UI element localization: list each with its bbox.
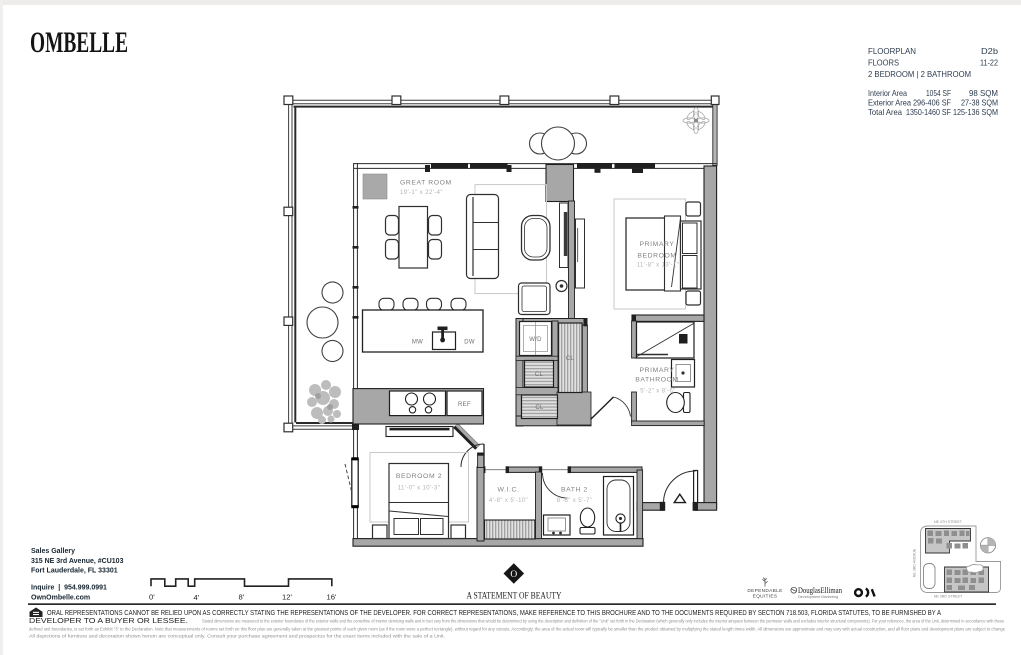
svg-text:NE 3RD STREET: NE 3RD STREET — [934, 595, 963, 599]
svg-text:Fort Lauderdale, FL 33301: Fort Lauderdale, FL 33301 — [31, 568, 118, 575]
svg-text:OMBELLE: OMBELLE — [30, 26, 128, 59]
svg-text:8'-6" x 5'-7": 8'-6" x 5'-7" — [557, 498, 592, 504]
svg-text:EQUITIES: EQUITIES — [753, 594, 778, 600]
svg-text:DW: DW — [464, 340, 475, 346]
svg-text:Exterior Area: Exterior Area — [868, 99, 911, 108]
svg-text:CL: CL — [566, 356, 575, 362]
svg-text:125-136 SQM: 125-136 SQM — [953, 108, 998, 117]
svg-text:16': 16' — [327, 593, 337, 602]
svg-text:CL: CL — [535, 405, 544, 411]
svg-text:PRIMARY: PRIMARY — [639, 241, 674, 248]
svg-text:NE 4TH STREET: NE 4TH STREET — [934, 520, 963, 524]
svg-text:A STATEMENT OF BEAUTY: A STATEMENT OF BEAUTY — [467, 592, 562, 602]
svg-text:1054 SF: 1054 SF — [926, 89, 951, 98]
svg-text:315 NE 3rd Avenue, #CU103: 315 NE 3rd Avenue, #CU103 — [31, 558, 124, 565]
svg-text:11'-0" x 10'-3": 11'-0" x 10'-3" — [398, 486, 440, 492]
svg-text:O: O — [510, 570, 517, 580]
svg-text:OwnOmbelle.com: OwnOmbelle.com — [31, 595, 90, 602]
svg-text:98 SQM: 98 SQM — [969, 89, 998, 98]
svg-text:5'-2" x 8'-6": 5'-2" x 8'-6" — [640, 389, 675, 395]
svg-text:Total Area: Total Area — [868, 108, 902, 117]
svg-text:REF: REF — [458, 402, 471, 408]
svg-text:DouglasElliman: DouglasElliman — [798, 586, 842, 595]
svg-text:Stated dimensions are measured: Stated dimensions are measured to the ex… — [202, 619, 1004, 625]
svg-text:0': 0' — [149, 593, 155, 602]
svg-text:12': 12' — [282, 593, 292, 602]
svg-text:W/D: W/D — [529, 337, 542, 343]
svg-text:8': 8' — [239, 593, 245, 602]
svg-text:DEVELOPER TO A BUYER OR LESSEE: DEVELOPER TO A BUYER OR LESSEE. — [29, 617, 188, 625]
svg-text:ORAL REPRESENTATIONS CANNOT BE: ORAL REPRESENTATIONS CANNOT BE RELIED UP… — [47, 609, 941, 617]
svg-text:FLOORS: FLOORS — [868, 59, 899, 68]
svg-text:FLOORPLAN: FLOORPLAN — [868, 47, 916, 56]
svg-text:27-38 SQM: 27-38 SQM — [961, 99, 998, 108]
svg-text:Development Marketing: Development Marketing — [798, 595, 838, 599]
svg-text:Interior Area: Interior Area — [868, 89, 907, 98]
svg-text:1350-1460 SF: 1350-1460 SF — [906, 108, 951, 117]
svg-text:MW: MW — [412, 340, 423, 346]
svg-text:4': 4' — [194, 593, 200, 602]
svg-text:BATHROOM: BATHROOM — [635, 377, 679, 384]
svg-text:Sales Gallery: Sales Gallery — [31, 548, 75, 555]
svg-text:Inquire | 954.999.0991: Inquire | 954.999.0991 — [31, 585, 107, 592]
svg-text:BEDROOM: BEDROOM — [637, 253, 676, 260]
svg-text:NE 3RD AVENUE: NE 3RD AVENUE — [913, 548, 917, 577]
svg-text:19'-1" x 22'-4": 19'-1" x 22'-4" — [400, 190, 443, 196]
svg-text:defined unit boundaries, is se: defined unit boundaries, is set forth as… — [29, 626, 1005, 632]
svg-text:GREAT ROOM: GREAT ROOM — [400, 180, 452, 187]
svg-text:PRIMARY: PRIMARY — [639, 367, 674, 374]
svg-text:All depictions of furniture an: All depictions of furniture and decorati… — [29, 634, 445, 640]
svg-text:11-22: 11-22 — [980, 59, 998, 68]
svg-text:2 BEDROOM | 2 BATHROOM: 2 BEDROOM | 2 BATHROOM — [868, 70, 971, 79]
svg-text:W.I.C.: W.I.C. — [497, 487, 519, 494]
svg-text:DEPENDABLE: DEPENDABLE — [747, 588, 782, 594]
svg-text:BEDROOM 2: BEDROOM 2 — [396, 473, 442, 480]
svg-text:CL: CL — [535, 372, 544, 378]
svg-text:296-406 SF: 296-406 SF — [913, 99, 951, 108]
svg-text:4'-8" x 5'-10": 4'-8" x 5'-10" — [489, 498, 528, 504]
svg-text:11'-8" x 13'-1": 11'-8" x 13'-1" — [637, 263, 679, 269]
svg-text:D2b: D2b — [981, 47, 998, 56]
svg-text:BATH 2: BATH 2 — [561, 487, 588, 494]
